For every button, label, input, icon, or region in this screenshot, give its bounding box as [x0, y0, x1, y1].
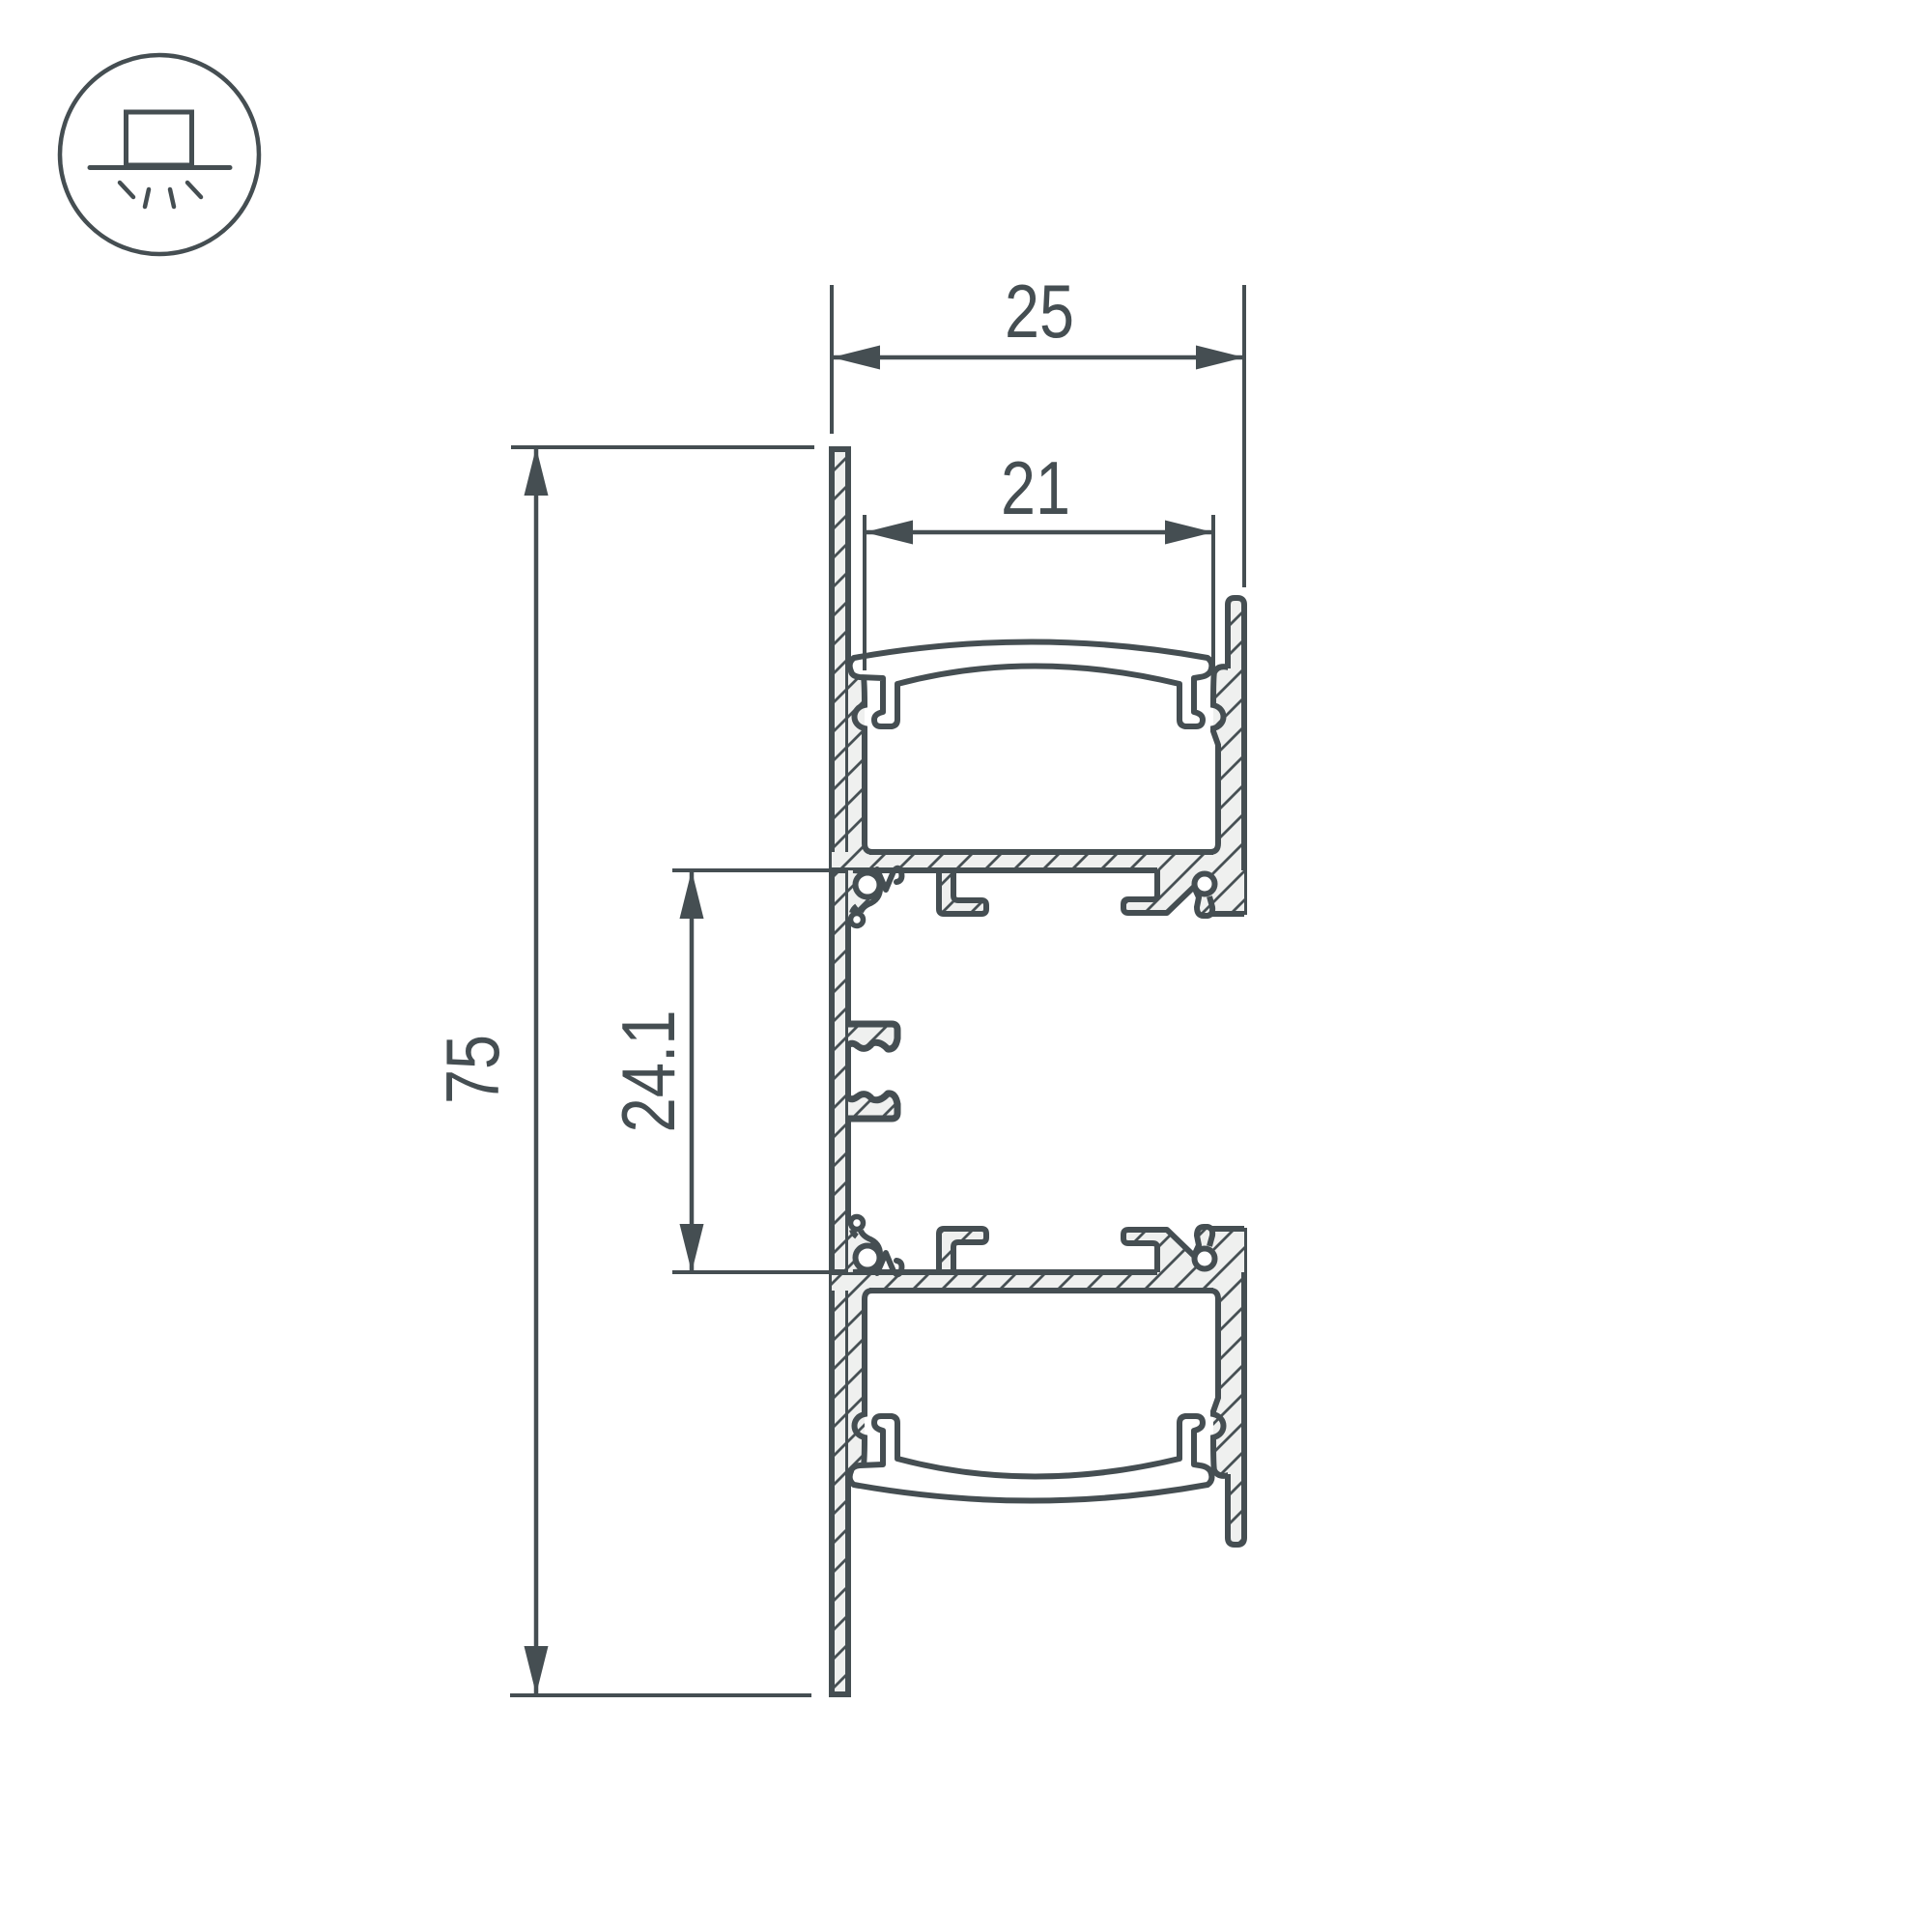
svg-text:24.1: 24.1 [606, 1010, 691, 1133]
svg-text:75: 75 [430, 1035, 515, 1104]
svg-text:21: 21 [1001, 445, 1070, 530]
svg-text:25: 25 [1005, 269, 1074, 354]
